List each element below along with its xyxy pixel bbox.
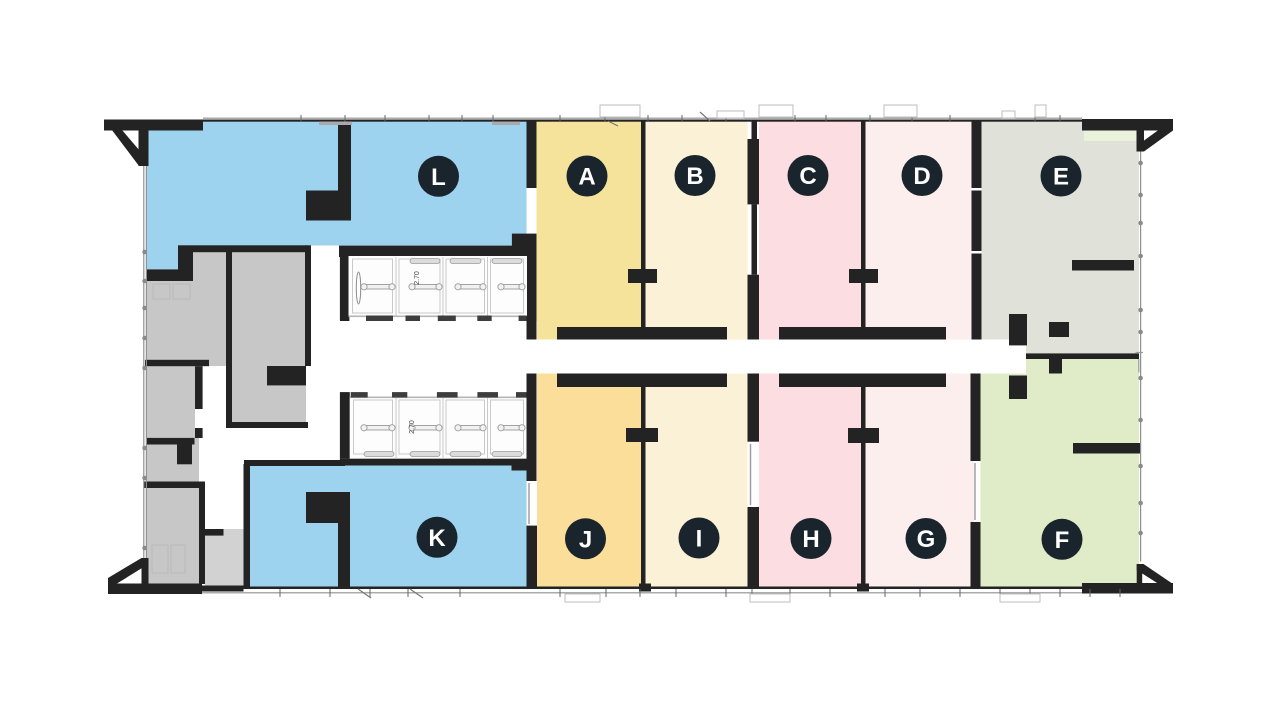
svg-text:I: I [696,526,703,553]
svg-text:E: E [1053,164,1069,191]
svg-text:2.70: 2.70 [414,271,421,285]
svg-text:H: H [802,526,819,553]
svg-text:A: A [578,164,595,191]
svg-text:K: K [428,525,446,552]
svg-text:G: G [917,526,936,553]
svg-text:2.70: 2.70 [409,420,416,434]
svg-text:F: F [1055,527,1070,554]
svg-text:B: B [686,163,703,190]
svg-text:C: C [799,163,816,190]
svg-text:L: L [431,164,446,191]
svg-text:J: J [579,526,592,553]
svg-text:D: D [913,163,930,190]
